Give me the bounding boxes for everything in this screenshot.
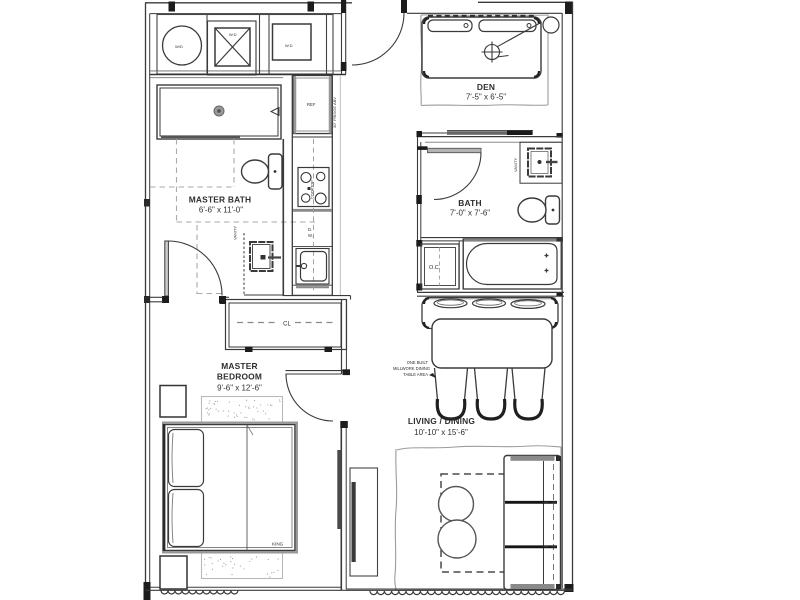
svg-text:30" FRIDGE ABV: 30" FRIDGE ABV (332, 97, 337, 128)
svg-text:DEN: DEN (477, 82, 495, 92)
svg-text:W/D: W/D (175, 44, 183, 49)
svg-text:6'-6" x 11'-0": 6'-6" x 11'-0" (199, 206, 243, 215)
svg-text:ONE BUILT: ONE BUILT (407, 360, 429, 365)
svg-text:BATH: BATH (458, 198, 481, 208)
svg-text:VANITY: VANITY (513, 158, 518, 172)
svg-text:7'-5" x 6'-5": 7'-5" x 6'-5" (466, 93, 506, 102)
svg-text:REF: REF (307, 102, 316, 107)
svg-text:W.D: W.D (229, 32, 237, 37)
svg-text:10'-10" x 15'-6": 10'-10" x 15'-6" (414, 428, 468, 437)
svg-text:TABLE AREA: TABLE AREA (403, 372, 428, 377)
svg-text:W.: W. (308, 233, 313, 238)
svg-text:COOKTOP: COOKTOP (311, 180, 315, 199)
svg-text:D.: D. (308, 227, 312, 232)
svg-text:MASTER: MASTER (221, 361, 258, 371)
svg-text:VANITY: VANITY (233, 226, 238, 240)
svg-text:O.C.: O.C. (429, 265, 441, 271)
svg-text:KING: KING (272, 542, 284, 547)
svg-text:CL: CL (283, 322, 291, 328)
svg-text:LIVING / DINING: LIVING / DINING (408, 416, 475, 426)
svg-text:MILLWORK DINING: MILLWORK DINING (393, 366, 430, 371)
svg-text:MASTER BATH: MASTER BATH (189, 195, 252, 205)
svg-text:7'-0" x 7'-6": 7'-0" x 7'-6" (450, 209, 490, 218)
svg-text:W.D: W.D (285, 43, 293, 48)
svg-text:BEDROOM: BEDROOM (217, 372, 262, 382)
svg-text:9'-6" x 12'-6": 9'-6" x 12'-6" (217, 384, 262, 393)
